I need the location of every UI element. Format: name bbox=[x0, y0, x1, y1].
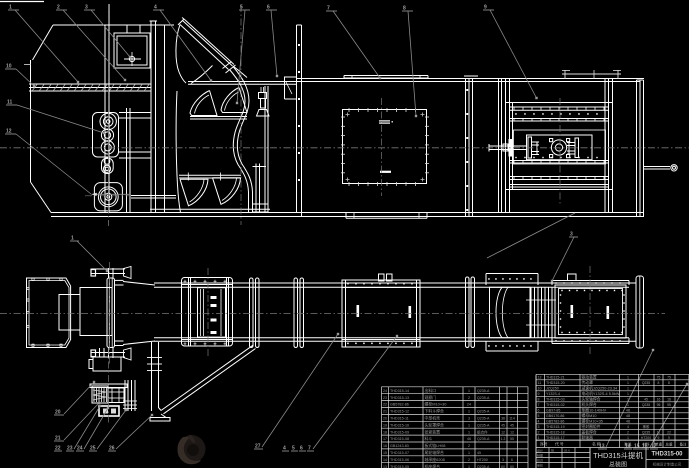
svg-text:THD315-21: THD315-21 bbox=[546, 376, 565, 380]
svg-text:12: 12 bbox=[510, 430, 514, 434]
svg-text:3: 3 bbox=[468, 417, 470, 421]
svg-text:JZQ250: JZQ250 bbox=[546, 387, 559, 391]
svg-text:45: 45 bbox=[510, 423, 514, 427]
svg-text:38: 38 bbox=[501, 417, 505, 421]
svg-text:95: 95 bbox=[667, 403, 671, 407]
svg-text:螺栓M10×35: 螺栓M10×35 bbox=[582, 419, 603, 424]
svg-text:THD315-10: THD315-10 bbox=[390, 423, 409, 427]
svg-text:THD315-19: THD315-19 bbox=[546, 425, 565, 429]
svg-text:11: 11 bbox=[657, 431, 661, 435]
svg-text:机械设计制造公司: 机械设计制造公司 bbox=[653, 462, 682, 467]
svg-text:下料斗焊合: 下料斗焊合 bbox=[425, 409, 445, 414]
svg-text:55: 55 bbox=[510, 437, 514, 441]
svg-text:3: 3 bbox=[538, 425, 540, 429]
svg-text:16: 16 bbox=[383, 444, 387, 448]
svg-text:46: 46 bbox=[467, 437, 471, 441]
svg-text:THD315-03: THD315-03 bbox=[546, 398, 565, 402]
svg-text:GB5782-86: GB5782-86 bbox=[546, 420, 564, 424]
svg-text:THD315-13: THD315-13 bbox=[390, 396, 409, 400]
svg-text:14: 14 bbox=[383, 458, 387, 462]
svg-text:114: 114 bbox=[509, 417, 515, 421]
svg-text:Q235-A: Q235-A bbox=[477, 389, 490, 393]
svg-text:5: 5 bbox=[538, 414, 540, 418]
svg-text:THD315斗提机: THD315斗提机 bbox=[593, 451, 643, 460]
svg-text:THD315-07: THD315-07 bbox=[390, 451, 409, 455]
svg-text:18: 18 bbox=[383, 430, 387, 434]
svg-text:单重: 单重 bbox=[655, 442, 663, 447]
svg-text:1: 1 bbox=[627, 387, 629, 391]
svg-text:观察门: 观察门 bbox=[425, 395, 437, 400]
svg-text:THD315-20: THD315-20 bbox=[546, 381, 565, 385]
svg-text:2: 2 bbox=[627, 431, 629, 435]
svg-text:传动罩: 传动罩 bbox=[582, 380, 594, 385]
svg-text:出料口: 出料口 bbox=[425, 388, 437, 393]
svg-text:48: 48 bbox=[626, 409, 630, 413]
svg-text:2: 2 bbox=[538, 431, 540, 435]
svg-text:备注: 备注 bbox=[680, 442, 687, 447]
svg-text:GB5782-86: GB5782-86 bbox=[390, 403, 409, 407]
svg-text:1: 1 bbox=[627, 392, 629, 396]
svg-text:19: 19 bbox=[383, 423, 387, 427]
svg-text:6: 6 bbox=[511, 458, 513, 462]
svg-text:9: 9 bbox=[538, 392, 540, 396]
svg-text:2: 2 bbox=[468, 458, 470, 462]
svg-text:12: 12 bbox=[501, 430, 505, 434]
svg-text:板式链LH08: 板式链LH08 bbox=[425, 443, 446, 448]
svg-text:10: 10 bbox=[538, 387, 542, 391]
svg-text:审核: 审核 bbox=[537, 463, 543, 468]
svg-text:48: 48 bbox=[626, 414, 630, 418]
svg-text:22: 22 bbox=[383, 403, 387, 407]
svg-text:电动机Y132S-4 5.5kW: 电动机Y132S-4 5.5kW bbox=[582, 391, 620, 396]
svg-text:THD315-11: THD315-11 bbox=[390, 417, 409, 421]
svg-text:Q235-A: Q235-A bbox=[477, 417, 490, 421]
svg-text:总装图: 总装图 bbox=[609, 461, 627, 468]
svg-text:Q235-A: Q235-A bbox=[477, 396, 490, 400]
svg-text:8: 8 bbox=[668, 381, 670, 385]
svg-text:GB6170-86: GB6170-86 bbox=[546, 414, 564, 418]
svg-text:GB97-85: GB97-85 bbox=[546, 409, 560, 413]
svg-text:材料: 材料 bbox=[642, 442, 650, 447]
svg-text:总重: 总重 bbox=[665, 442, 673, 447]
svg-text:组合件: 组合件 bbox=[477, 429, 488, 434]
svg-text:1: 1 bbox=[627, 376, 629, 380]
svg-text:2: 2 bbox=[468, 444, 470, 448]
svg-text:1: 1 bbox=[468, 423, 470, 427]
svg-text:1: 1 bbox=[627, 398, 629, 402]
svg-text:1: 1 bbox=[468, 451, 470, 455]
svg-text:Q235: Q235 bbox=[642, 381, 650, 385]
svg-text:减速机JZQ250-23.34: 减速机JZQ250-23.34 bbox=[582, 386, 618, 391]
svg-text:75: 75 bbox=[657, 376, 661, 380]
svg-text:THD315-00: THD315-00 bbox=[651, 452, 683, 458]
svg-text:THD315-08: THD315-08 bbox=[390, 437, 409, 441]
svg-text:数量: 数量 bbox=[624, 442, 632, 447]
svg-text:05.6: 05.6 bbox=[564, 449, 570, 453]
svg-text:24: 24 bbox=[383, 389, 387, 393]
svg-text:THD315-02: THD315-02 bbox=[546, 403, 565, 407]
svg-text:机座焊合: 机座焊合 bbox=[425, 464, 441, 468]
svg-text:张紧装置: 张紧装置 bbox=[425, 429, 441, 434]
svg-text:GB1243-83: GB1243-83 bbox=[390, 444, 409, 448]
svg-text:16: 16 bbox=[667, 398, 671, 402]
svg-text:Q235-A: Q235-A bbox=[477, 437, 490, 441]
svg-text:代 号: 代 号 bbox=[555, 442, 564, 447]
svg-text:1: 1 bbox=[468, 410, 470, 414]
svg-text:设计: 设计 bbox=[537, 448, 543, 453]
svg-text:张: 张 bbox=[551, 448, 554, 453]
svg-text:校对: 校对 bbox=[537, 458, 543, 463]
svg-text:头轮罩焊合: 头轮罩焊合 bbox=[425, 422, 445, 427]
svg-text:95: 95 bbox=[657, 403, 661, 407]
svg-text:11: 11 bbox=[538, 381, 542, 385]
svg-text:20: 20 bbox=[383, 417, 387, 421]
svg-text:12: 12 bbox=[538, 376, 542, 380]
svg-text:Y132S-4: Y132S-4 bbox=[546, 392, 560, 396]
svg-text:1: 1 bbox=[627, 381, 629, 385]
svg-text:密封圈组件: 密封圈组件 bbox=[582, 424, 601, 429]
svg-text:16: 16 bbox=[657, 398, 661, 402]
svg-text:联轴器: 联轴器 bbox=[582, 435, 594, 440]
svg-text:1: 1 bbox=[468, 389, 470, 393]
svg-text:Q235: Q235 bbox=[642, 431, 650, 435]
svg-text:机头焊合: 机头焊合 bbox=[582, 402, 597, 407]
svg-text:制图: 制图 bbox=[537, 453, 543, 458]
svg-text:螺母M10: 螺母M10 bbox=[582, 413, 597, 418]
svg-text:Q235: Q235 bbox=[642, 403, 650, 407]
svg-text:4: 4 bbox=[627, 425, 629, 429]
svg-text:THD315-14: THD315-14 bbox=[390, 389, 409, 393]
svg-text:1: 1 bbox=[627, 403, 629, 407]
svg-text:驱动装置: 驱动装置 bbox=[582, 375, 597, 380]
svg-text:2: 2 bbox=[468, 396, 470, 400]
svg-text:盖板焊合: 盖板焊合 bbox=[582, 430, 597, 435]
svg-text:8: 8 bbox=[658, 381, 660, 385]
svg-text:THD315-09: THD315-09 bbox=[390, 430, 409, 434]
svg-text:22: 22 bbox=[667, 431, 671, 435]
svg-text:橡胶: 橡胶 bbox=[643, 424, 650, 429]
svg-text:序号: 序号 bbox=[540, 442, 548, 447]
svg-text:THD315-06: THD315-06 bbox=[390, 458, 409, 462]
svg-text:17: 17 bbox=[383, 437, 387, 441]
svg-text:HT200: HT200 bbox=[477, 458, 488, 462]
svg-text:8: 8 bbox=[538, 398, 540, 402]
svg-text:1: 1 bbox=[468, 430, 470, 434]
svg-text:4: 4 bbox=[538, 420, 540, 424]
svg-text:名 称: 名 称 bbox=[592, 442, 601, 447]
svg-text:1.2: 1.2 bbox=[501, 437, 506, 441]
svg-text:48: 48 bbox=[626, 420, 630, 424]
svg-text:7: 7 bbox=[538, 403, 540, 407]
svg-text:24: 24 bbox=[467, 403, 471, 407]
svg-text:15: 15 bbox=[383, 451, 387, 455]
svg-text:THD315-18: THD315-18 bbox=[546, 431, 565, 435]
svg-text:Q235-A: Q235-A bbox=[477, 423, 490, 427]
svg-text:45: 45 bbox=[477, 451, 481, 455]
svg-text:75: 75 bbox=[667, 376, 671, 380]
svg-text:3: 3 bbox=[502, 458, 504, 462]
svg-text:THD315-12: THD315-12 bbox=[390, 410, 409, 414]
svg-text:尾轮轴焊合: 尾轮轴焊合 bbox=[425, 450, 445, 455]
svg-text:45: 45 bbox=[644, 398, 648, 402]
svg-text:轴承座6208: 轴承座6208 bbox=[425, 457, 445, 462]
svg-text:头轮轴焊合: 头轮轴焊合 bbox=[582, 397, 601, 402]
svg-text:21: 21 bbox=[383, 410, 387, 414]
svg-text:中部机壳: 中部机壳 bbox=[425, 416, 441, 421]
svg-text:45: 45 bbox=[501, 423, 505, 427]
svg-text:23: 23 bbox=[383, 396, 387, 400]
svg-text:料斗: 料斗 bbox=[425, 436, 433, 441]
svg-text:6: 6 bbox=[538, 409, 540, 413]
svg-text:垫圈10-140HV: 垫圈10-140HV bbox=[582, 408, 607, 413]
svg-text:螺栓M10×30: 螺栓M10×30 bbox=[425, 402, 448, 407]
svg-text:Q235-A: Q235-A bbox=[477, 410, 490, 414]
